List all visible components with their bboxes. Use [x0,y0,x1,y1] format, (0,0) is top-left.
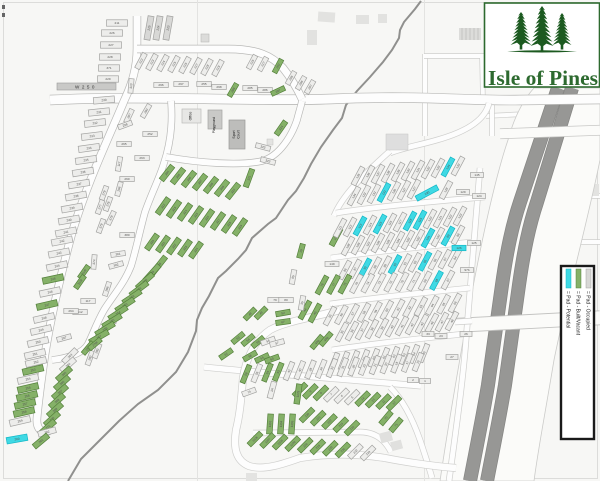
svg-text:80: 80 [284,298,288,302]
svg-text:79: 79 [273,298,277,302]
svg-text:263: 263 [139,156,144,160]
svg-text:231: 231 [96,110,102,115]
svg-text:124: 124 [476,194,481,198]
svg-text:298: 298 [216,85,221,89]
svg-text:229: 229 [105,77,110,81]
svg-text:2: 2 [412,378,414,382]
svg-text:213: 213 [129,83,133,89]
svg-text:228: 228 [107,55,112,59]
svg-text:1103: 1103 [268,420,272,427]
svg-text:= Pad - Occupied: = Pad - Occupied [584,291,590,330]
svg-text:145: 145 [474,173,479,177]
svg-text:252: 252 [147,132,152,136]
svg-text:234: 234 [86,146,92,151]
svg-text:265: 265 [121,142,126,146]
svg-text:211: 211 [115,21,120,25]
svg-text:296: 296 [158,83,163,87]
svg-text:255: 255 [201,82,206,86]
svg-text:236: 236 [80,170,86,175]
svg-text:285: 285 [247,86,252,90]
svg-text:= Pad - Built/Vacant: = Pad - Built/Vacant [574,291,580,336]
svg-text:125: 125 [471,241,476,245]
svg-text:227: 227 [108,43,113,47]
svg-text:W250: W250 [75,85,97,90]
svg-text:149: 149 [329,262,334,266]
svg-text:301: 301 [115,252,121,257]
svg-text:260: 260 [124,177,129,181]
svg-text:226: 226 [109,31,114,35]
svg-text:33: 33 [426,332,430,336]
svg-text:Playground: Playground [212,117,216,133]
svg-text:27: 27 [450,355,454,359]
svg-text:1: 1 [424,379,426,383]
svg-text:264: 264 [68,309,73,313]
svg-text:97b: 97b [464,268,469,272]
svg-text:23: 23 [439,334,443,338]
svg-text:235: 235 [83,158,89,163]
svg-text:Isle of Pines: Isle of Pines [488,66,598,90]
svg-text:117: 117 [86,299,91,303]
svg-text:230: 230 [101,98,107,102]
svg-text:233: 233 [89,134,95,139]
svg-text:286: 286 [262,88,267,92]
svg-text:= Pad - Potential: = Pad - Potential [564,291,570,328]
svg-text:232: 232 [92,121,98,126]
svg-text:26: 26 [464,332,468,336]
svg-text:297: 297 [178,82,183,86]
svg-text:274: 274 [92,259,96,265]
svg-text:Sport: Sport [232,130,236,138]
svg-text:371: 371 [106,66,111,70]
svg-text:Court: Court [237,130,241,138]
svg-text:Office: Office [189,111,193,120]
svg-text:237: 237 [76,182,82,187]
svg-text:380: 380 [124,233,129,237]
svg-text:1105: 1105 [290,420,294,427]
svg-text:1104: 1104 [279,420,283,427]
svg-text:126: 126 [456,246,461,250]
svg-text:129: 129 [460,190,465,194]
